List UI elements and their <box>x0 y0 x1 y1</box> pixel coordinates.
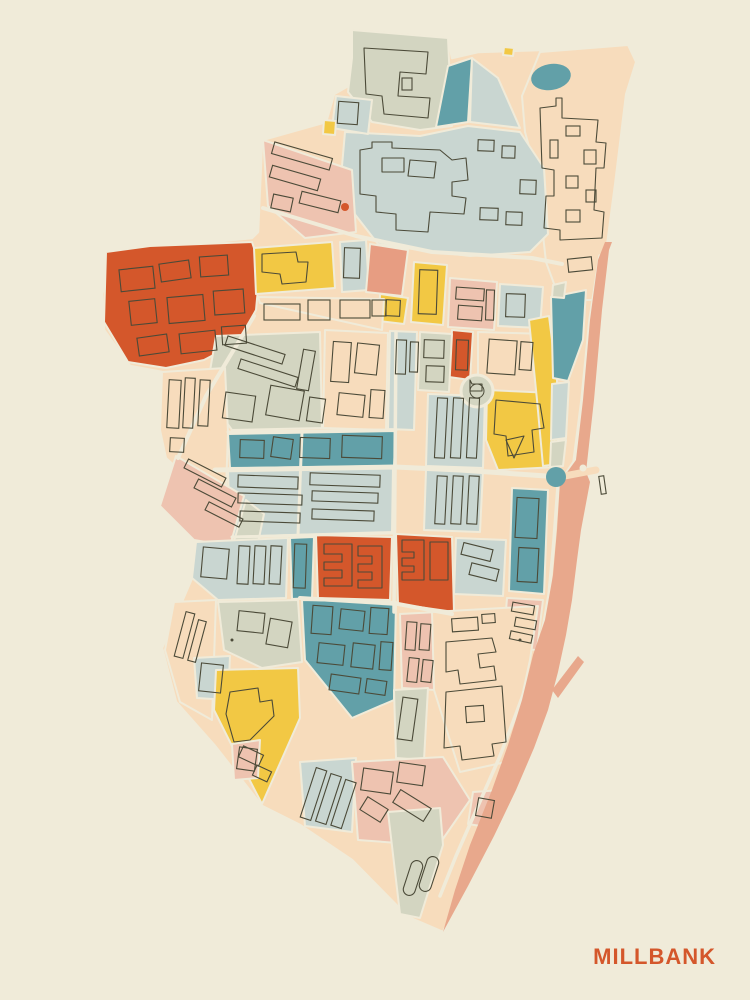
region-teal-col-e <box>509 488 548 594</box>
region-sage-sliver-e <box>552 282 566 298</box>
region-sage-sliver-e2 <box>550 440 566 467</box>
region-yellow-west <box>254 242 335 294</box>
region-orange-estate-e <box>396 534 454 612</box>
map-title: MILLBANK <box>593 944 716 970</box>
region-abbey-block <box>342 126 548 256</box>
region-blue-sliver-e <box>551 382 569 440</box>
region-yellow-tiny-1 <box>323 120 336 135</box>
region-pink-mid <box>448 278 497 330</box>
region-sage-mid <box>418 332 452 392</box>
region-yellow-mid-2 <box>411 262 447 325</box>
region-yellow-tiny-2 <box>503 47 514 56</box>
region-blue-col-mid <box>388 331 417 430</box>
jetty-dot <box>580 465 587 472</box>
red-dot <box>341 203 349 211</box>
region-orange-estate-w <box>316 535 392 600</box>
poster: MILLBANK <box>0 0 750 1000</box>
tree-dot-2 <box>231 639 234 642</box>
region-salmon-mid-n <box>366 244 408 296</box>
bridge-roundabout <box>546 467 566 487</box>
road-2 <box>228 430 396 432</box>
region-blue-cols-s <box>300 758 356 832</box>
millbank-map <box>0 0 750 1000</box>
